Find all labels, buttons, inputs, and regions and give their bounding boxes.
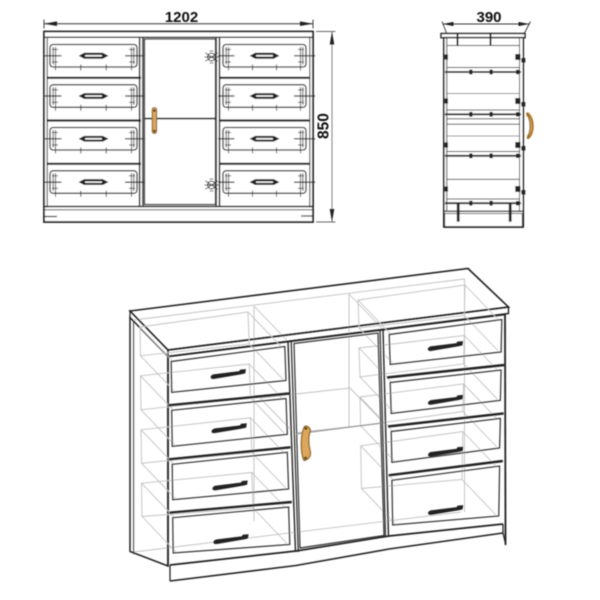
- svg-text:390: 390: [476, 9, 501, 26]
- svg-text:850: 850: [316, 113, 333, 139]
- svg-text:1202: 1202: [165, 9, 198, 26]
